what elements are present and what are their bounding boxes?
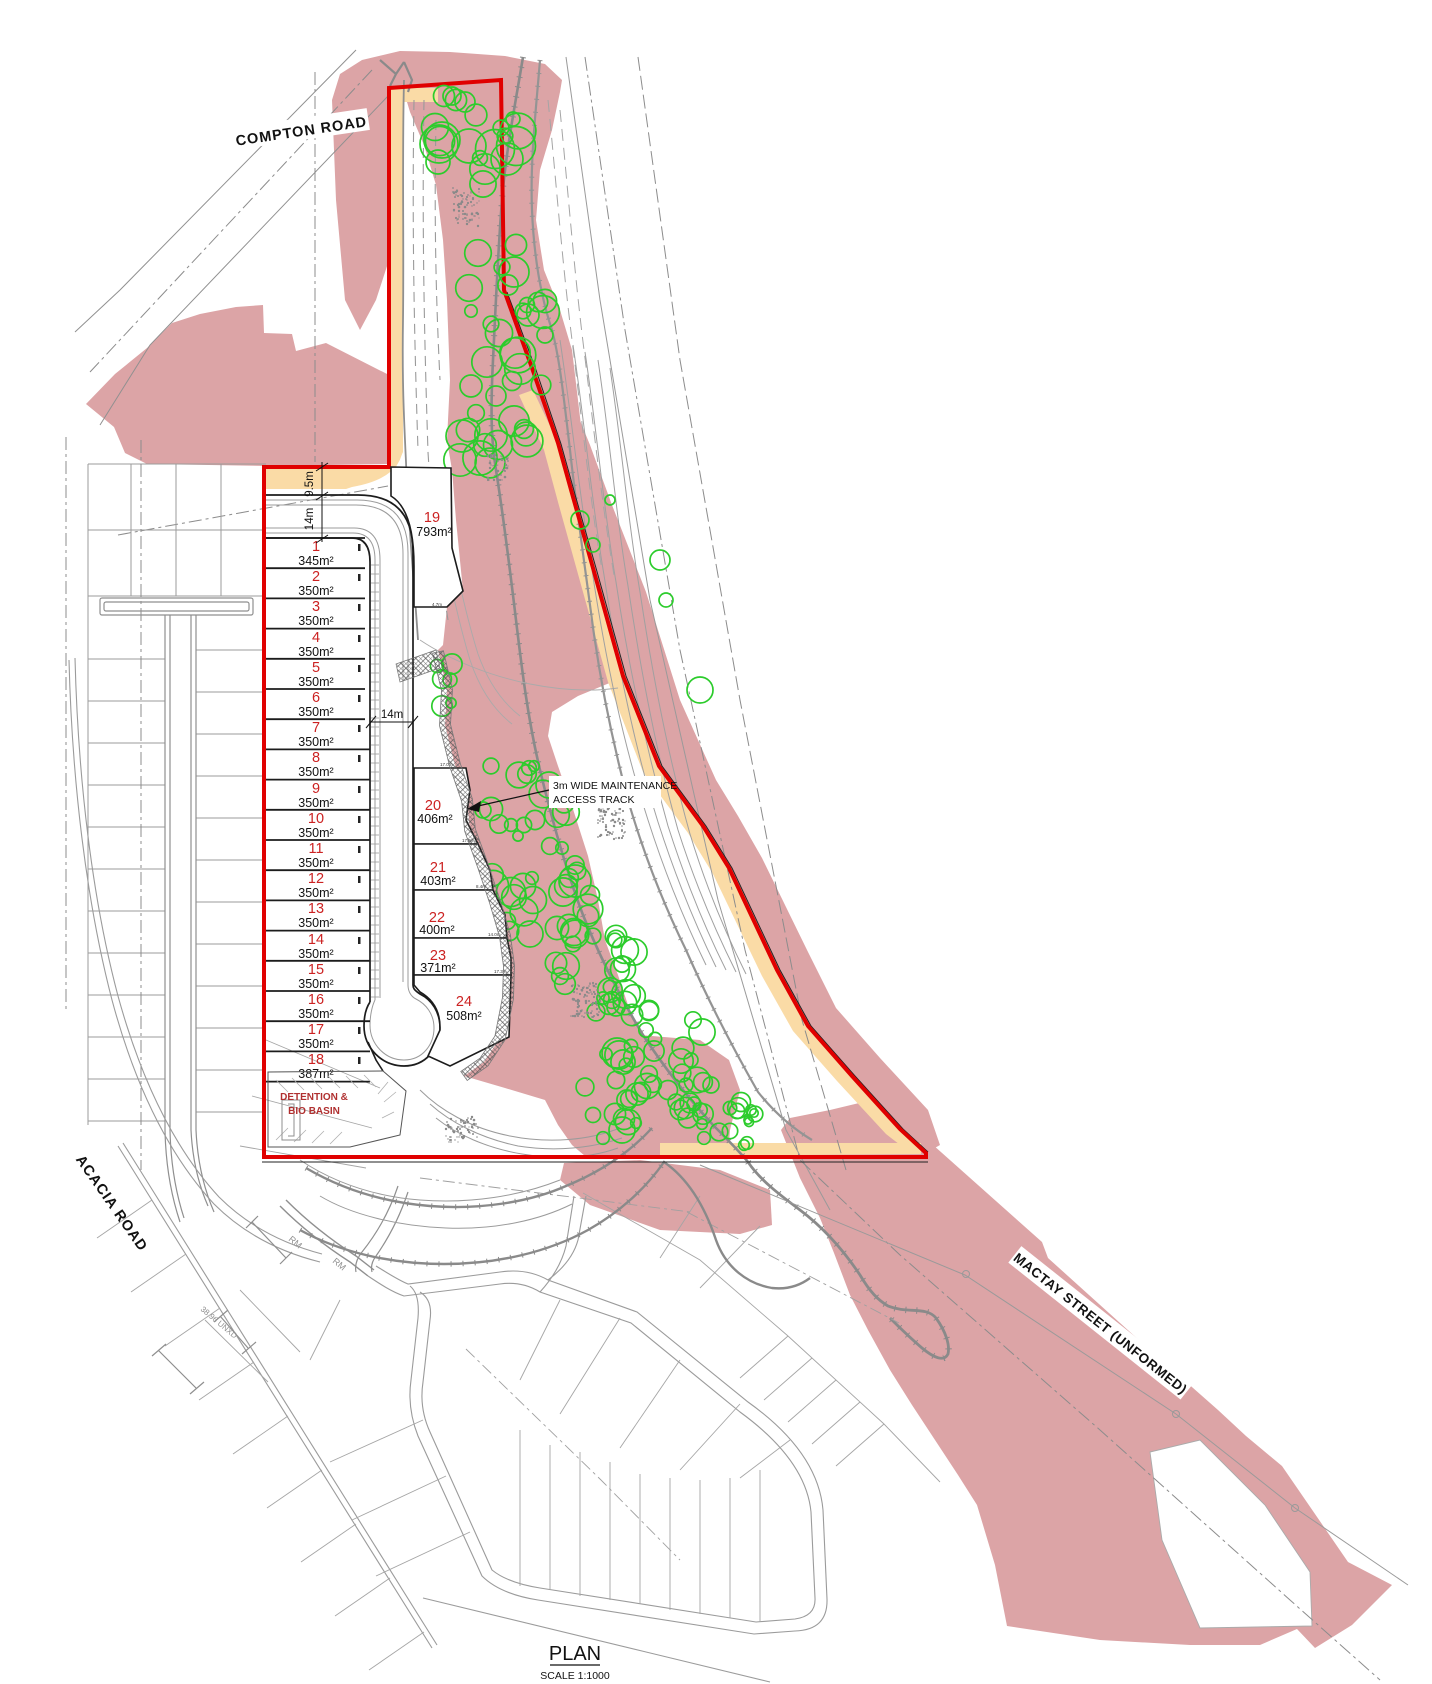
svg-text:350m²: 350m² [298, 886, 333, 900]
svg-text:14m: 14m [381, 709, 403, 721]
svg-text:508m²: 508m² [446, 1009, 481, 1023]
svg-text:350m²: 350m² [298, 765, 333, 779]
svg-text:17: 17 [308, 1022, 324, 1038]
svg-text:350m²: 350m² [298, 584, 333, 598]
svg-text:350m²: 350m² [298, 977, 333, 991]
svg-text:7: 7 [312, 720, 320, 736]
svg-text:350m²: 350m² [298, 826, 333, 840]
svg-text:350m²: 350m² [298, 614, 333, 628]
svg-text:350m²: 350m² [298, 1037, 333, 1051]
svg-text:SCALE 1:1000: SCALE 1:1000 [540, 1670, 610, 1682]
svg-text:PLAN: PLAN [549, 1643, 601, 1665]
svg-text:24: 24 [456, 994, 472, 1010]
svg-text:350m²: 350m² [298, 675, 333, 689]
svg-text:15: 15 [308, 962, 324, 978]
svg-text:350m²: 350m² [298, 916, 333, 930]
svg-text:400m²: 400m² [419, 923, 454, 937]
svg-text:14m: 14m [304, 508, 316, 530]
svg-text:350m²: 350m² [298, 796, 333, 810]
svg-text:350m²: 350m² [298, 947, 333, 961]
svg-text:350m²: 350m² [298, 735, 333, 749]
svg-text:3m WIDE MAINTENANCE: 3m WIDE MAINTENANCE [553, 780, 677, 792]
svg-text:350m²: 350m² [298, 856, 333, 870]
svg-text:4: 4 [312, 630, 320, 646]
svg-text:12: 12 [308, 871, 324, 887]
svg-text:18: 18 [308, 1052, 324, 1068]
svg-text:371m²: 371m² [420, 961, 455, 975]
svg-text:350m²: 350m² [298, 1007, 333, 1021]
svg-text:8: 8 [312, 750, 320, 766]
svg-text:3: 3 [312, 599, 320, 615]
svg-text:5: 5 [312, 660, 320, 676]
svg-text:BIO BASIN: BIO BASIN [288, 1106, 340, 1117]
svg-text:350m²: 350m² [298, 645, 333, 659]
svg-text:387m²: 387m² [298, 1067, 333, 1081]
svg-text:DETENTION &: DETENTION & [280, 1092, 348, 1103]
svg-text:345m²: 345m² [298, 554, 333, 568]
svg-text:403m²: 403m² [420, 874, 455, 888]
svg-text:11: 11 [308, 841, 323, 857]
svg-text:6: 6 [312, 690, 320, 706]
svg-text:9: 9 [312, 781, 320, 797]
svg-text:9.5m: 9.5m [304, 471, 316, 497]
svg-text:ACCESS TRACK: ACCESS TRACK [553, 794, 635, 806]
svg-text:14: 14 [308, 932, 324, 948]
svg-text:350m²: 350m² [298, 705, 333, 719]
svg-text:16: 16 [308, 992, 324, 1008]
svg-text:406m²: 406m² [417, 812, 452, 826]
svg-text:10: 10 [308, 811, 324, 827]
svg-text:19: 19 [424, 510, 440, 526]
svg-text:13: 13 [308, 901, 324, 917]
svg-text:793m²: 793m² [416, 525, 451, 539]
svg-text:2: 2 [312, 569, 320, 585]
svg-text:4.7m: 4.7m [432, 602, 442, 607]
